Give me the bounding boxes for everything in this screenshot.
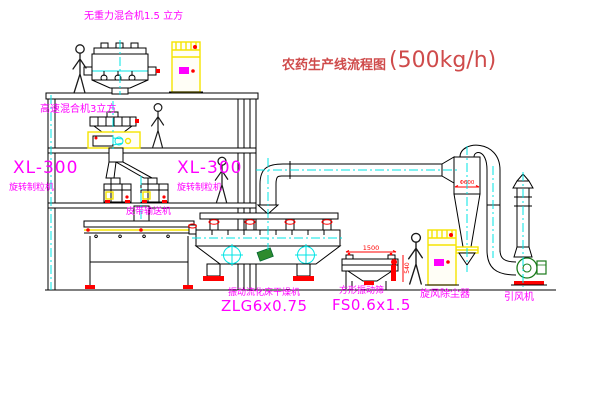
overhead-duct [258,161,442,214]
label-sieve-name: 方形振动筛 [339,287,384,296]
gravity-free-mixer [84,43,160,94]
title-capacity: (500kg/h) [389,48,496,73]
drawing-title: 农药生产线流程图 (500kg/h) [282,48,496,73]
sieve-spout [364,281,374,285]
sieve-discharge-pipe [391,265,396,281]
person-ground [409,233,423,284]
indicator-light [193,45,197,49]
label-fan: 引风机 [504,293,534,303]
label-gravity-mixer: 无重力混合机1.5 立方 [84,12,183,22]
floor-2-slab [48,148,256,153]
label-granulator-center-model: XL-300 [177,160,242,177]
roof-slab [46,93,258,99]
cabinet-marking [179,67,189,74]
control-cabinet-top [169,42,203,92]
label-granulator-left-model: XL-300 [13,160,78,177]
label-high-speed-mixer: 高速混合机3立方 [40,105,116,115]
sieve-width-dimension: 1500 [363,244,380,252]
person-floor-2 [152,104,164,148]
vibrating-sieve-machine [342,251,403,291]
granulator-right-machine [141,178,168,203]
flow-diagram: 1500 540 Φ600 农药生产线流程图 (500kg/h) 无重力混合机1… [0,0,600,403]
label-granulator-left-name: 旋转制粒机 [9,184,54,193]
fan-motor [537,261,546,274]
label-granulator-center-name: 旋转制粒机 [177,184,222,193]
label-sieve-model: FS0.6x1.5 [332,298,411,313]
induced-draft-fan-machine [511,258,547,285]
label-cyclone: 旋风除尘器 [420,290,470,300]
granulator-left-machine [104,178,131,203]
indicator-light [449,233,453,237]
label-dryer-model: ZLG6x0.75 [221,299,308,314]
high-speed-mixer [88,112,140,148]
cyclone-diameter-dimension: Φ600 [460,180,475,186]
belt-conveyor-machine [84,221,194,289]
cabinet-marking [434,259,444,266]
fluid-bed-dryer-machine [189,213,341,281]
dryer-stubs [209,219,332,230]
title-text: 农药生产线流程图 [282,48,386,73]
sieve-height-dimension: 540 [404,262,411,274]
control-cabinet-ground [425,230,459,285]
label-belt-conveyor: 皮带输送机 [126,208,171,217]
